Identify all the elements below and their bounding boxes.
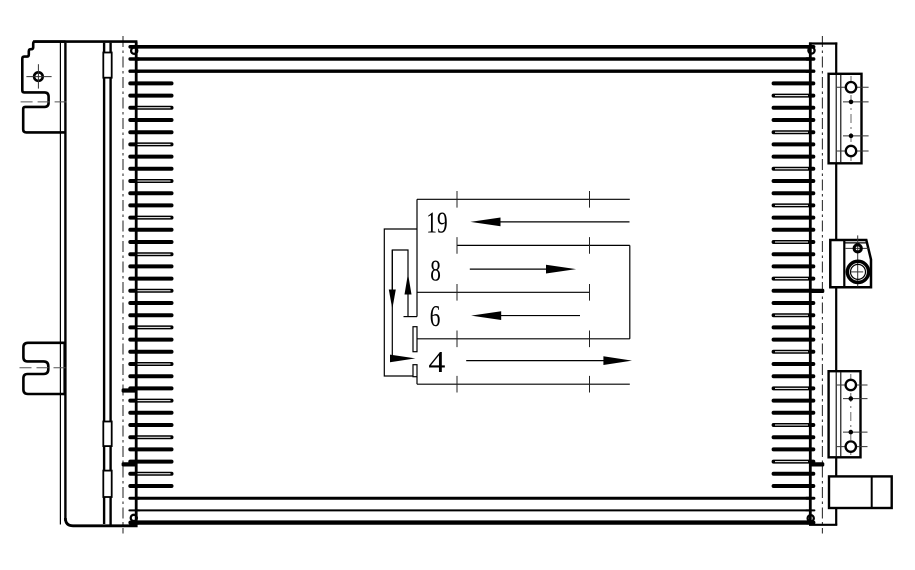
svg-text:19: 19 (426, 205, 447, 240)
svg-text:8: 8 (430, 252, 441, 287)
svg-text:6: 6 (430, 298, 441, 333)
svg-text:4: 4 (428, 344, 446, 379)
